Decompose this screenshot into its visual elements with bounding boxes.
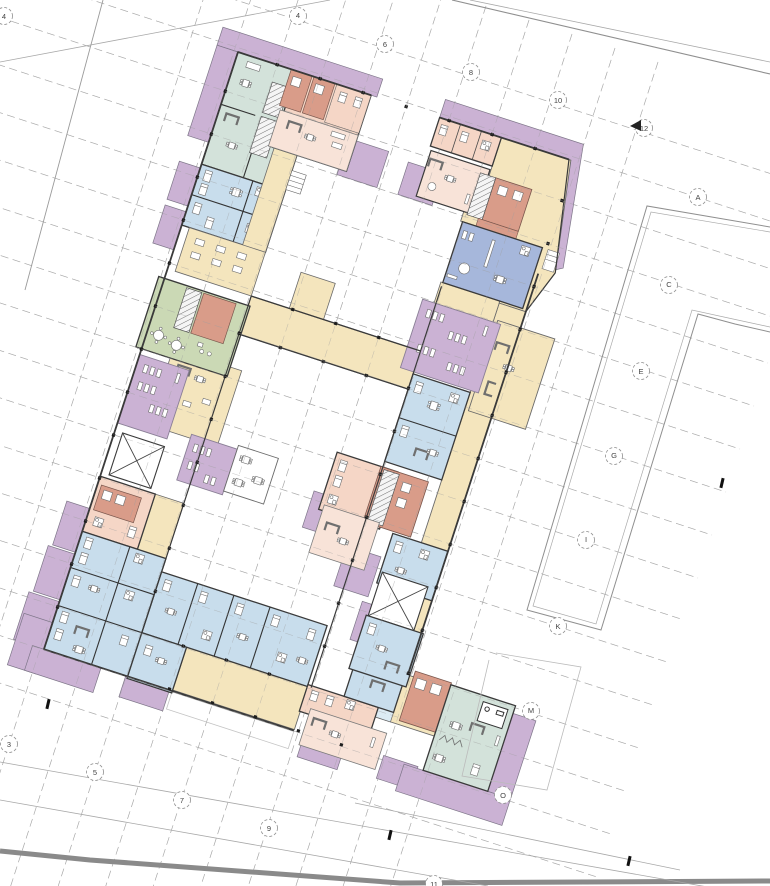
svg-text:C: C: [666, 280, 672, 289]
svg-text:3: 3: [7, 740, 11, 749]
svg-text:8: 8: [469, 68, 473, 77]
svg-text:I: I: [585, 535, 587, 544]
svg-text:5: 5: [93, 768, 97, 777]
svg-text:4: 4: [2, 12, 6, 21]
svg-text:4: 4: [296, 11, 300, 20]
svg-text:11: 11: [430, 880, 438, 886]
svg-text:12: 12: [640, 124, 648, 133]
svg-text:6: 6: [383, 40, 387, 49]
svg-text:E: E: [638, 367, 643, 376]
svg-text:G: G: [611, 451, 617, 460]
svg-text:7: 7: [180, 796, 184, 805]
svg-text:10: 10: [554, 96, 562, 105]
svg-text:K: K: [555, 622, 560, 631]
svg-text:O: O: [500, 791, 506, 800]
svg-text:M: M: [528, 706, 534, 715]
svg-text:9: 9: [267, 824, 271, 833]
svg-text:A: A: [695, 193, 700, 202]
